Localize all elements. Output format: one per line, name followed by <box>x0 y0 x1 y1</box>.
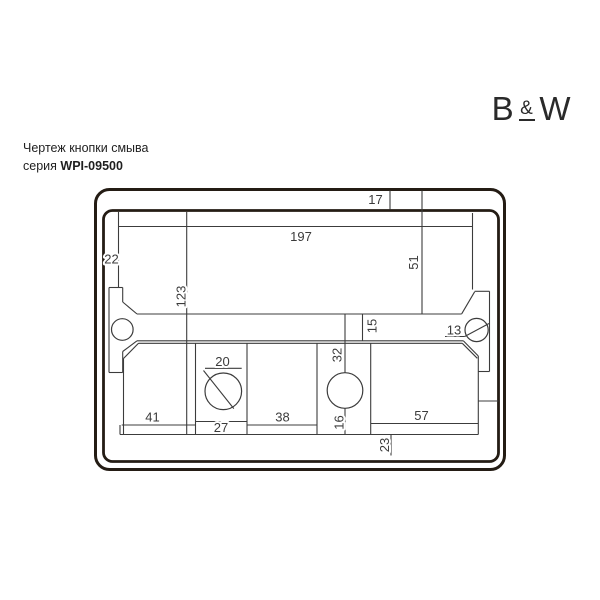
center-button-circle <box>327 373 363 409</box>
dimension-label-27: 27 <box>214 420 228 435</box>
drawing-line <box>463 341 478 356</box>
page-background: B&W Чертеж кнопки смыва серия WPI-09500 … <box>0 0 600 600</box>
drawing-line <box>204 371 234 409</box>
dimension-label-57: 57 <box>414 408 428 423</box>
dimension-label-20: 20 <box>215 354 229 369</box>
technical-drawing: 17197225112315133220412738165723 <box>0 0 600 600</box>
drawing-line <box>123 341 137 352</box>
drawing-line <box>465 324 489 337</box>
dimension-label-123: 123 <box>174 286 189 308</box>
dimension-label-17: 17 <box>368 192 382 207</box>
drawing-line <box>462 343 477 358</box>
dimension-label-197: 197 <box>290 229 312 244</box>
dimension-label-38: 38 <box>275 410 289 425</box>
drawing-line <box>123 302 137 314</box>
dimension-label-22: 22 <box>104 252 118 267</box>
dimension-label-41: 41 <box>145 410 159 425</box>
dimension-label-51: 51 <box>406 255 421 269</box>
dimension-label-13: 13 <box>447 323 461 338</box>
left-tab-hole <box>112 319 134 341</box>
dimension-label-15: 15 <box>365 319 380 333</box>
small-button-circle <box>205 373 242 410</box>
dimension-label-32: 32 <box>330 348 345 362</box>
dimension-label-16: 16 <box>332 415 347 429</box>
drawing-line <box>462 292 475 314</box>
dimension-label-23: 23 <box>377 438 392 452</box>
